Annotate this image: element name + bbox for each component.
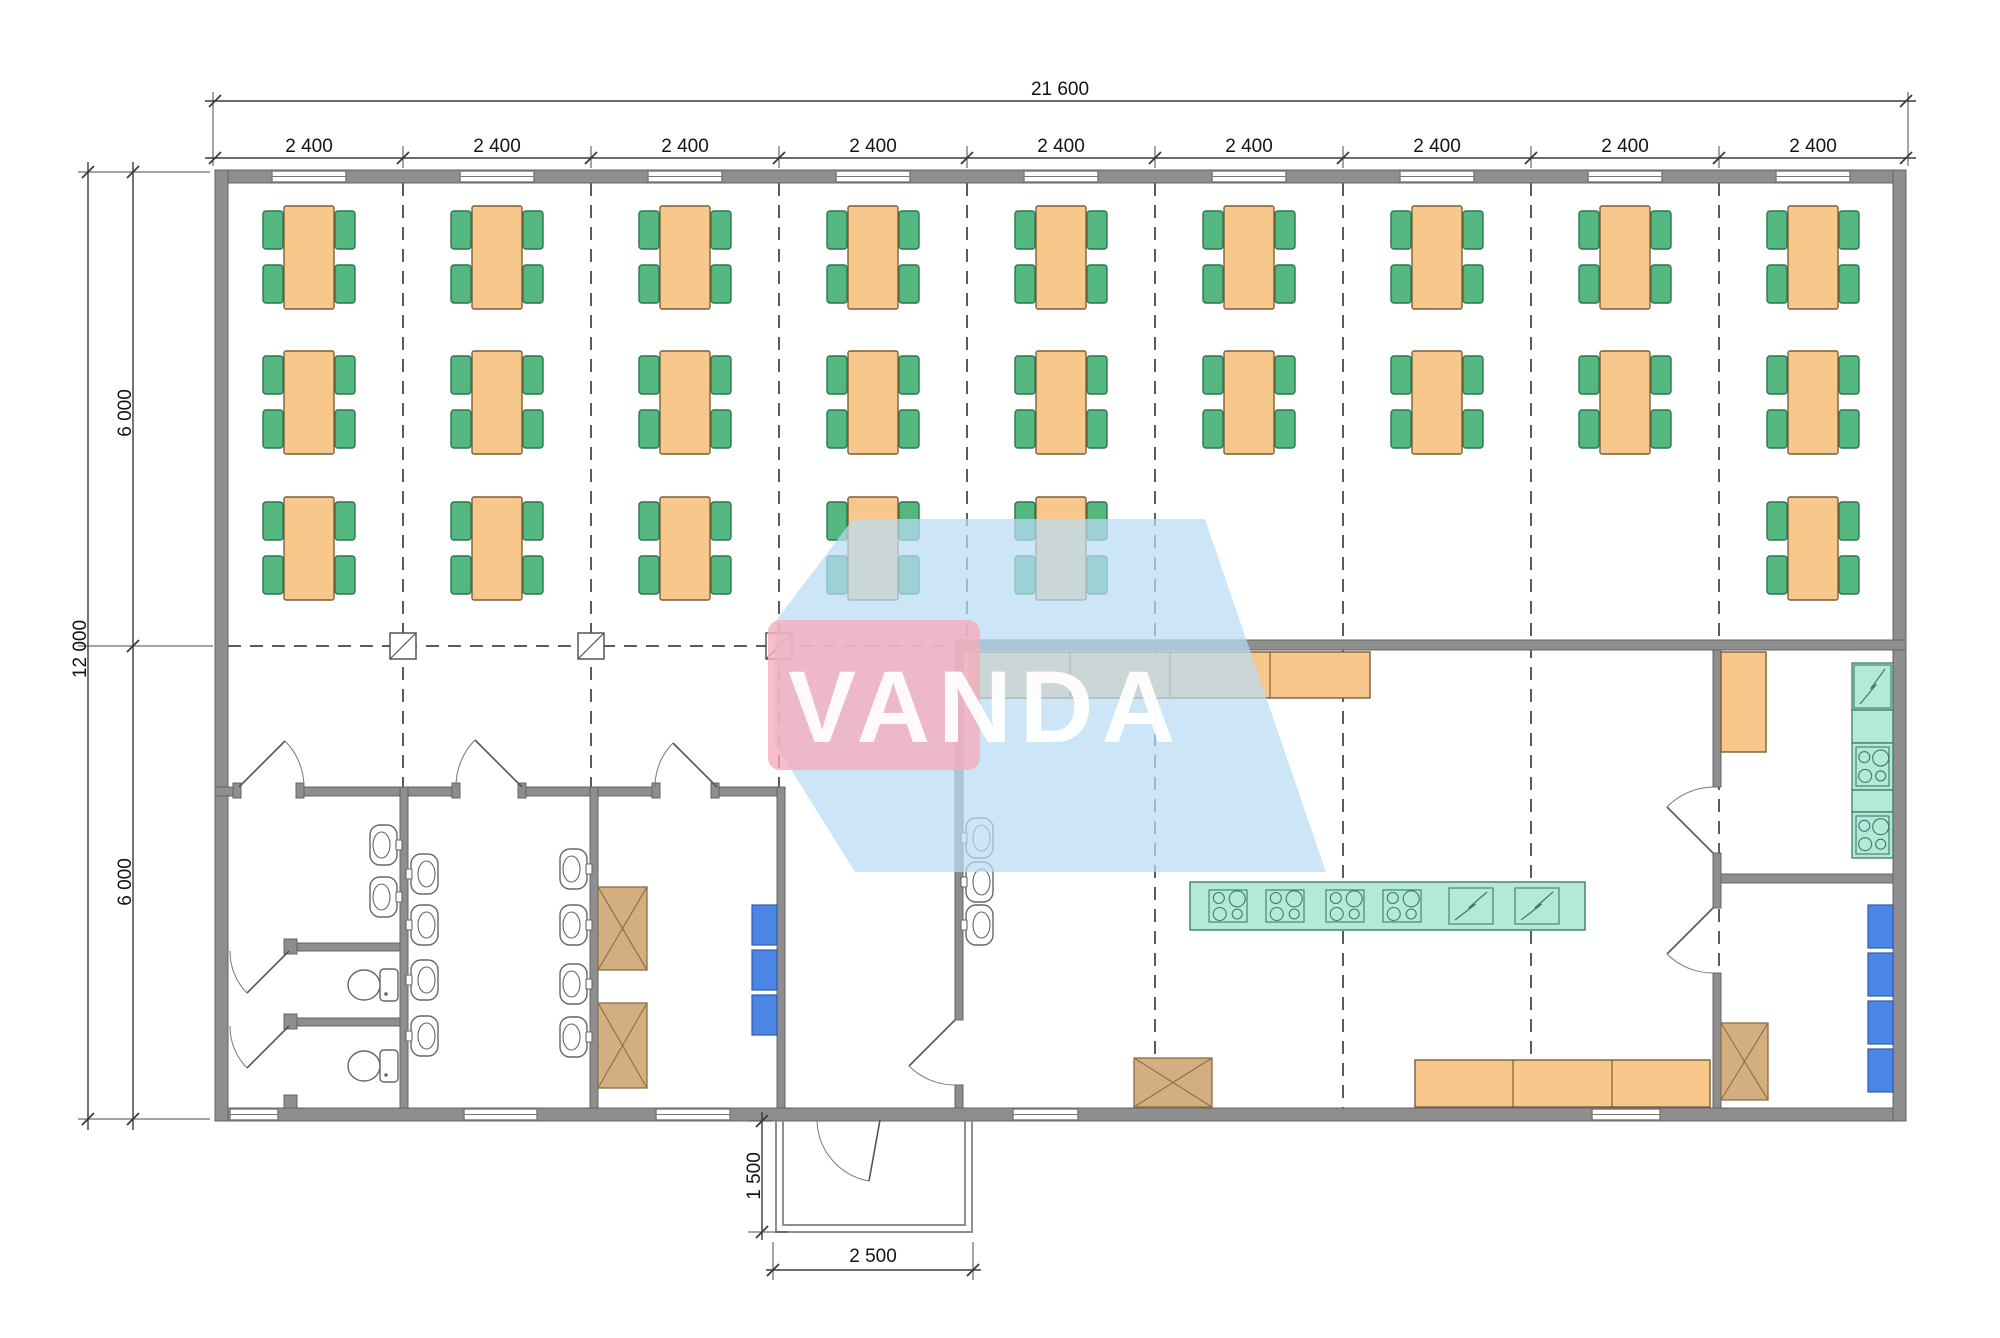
dining-chair — [711, 410, 731, 448]
sink-faucet — [586, 979, 592, 989]
dim-bay-width: 2 400 — [1037, 136, 1085, 157]
dim-bay-width: 2 400 — [1789, 136, 1837, 157]
watermark-layer: VANDA — [768, 519, 1326, 872]
dining-chair — [335, 410, 355, 448]
wall-kitchen-east — [1713, 973, 1721, 1108]
wall-kitchen-east — [1713, 650, 1721, 787]
dining-chair — [711, 556, 731, 594]
entrance-porch — [776, 1121, 972, 1232]
kitchen-island — [1190, 882, 1585, 930]
door-stall-2-leaf — [247, 1026, 289, 1068]
dining-table — [1412, 206, 1462, 309]
dining-chair — [1275, 211, 1295, 249]
dining-chair — [263, 356, 283, 394]
dining-chair — [263, 211, 283, 249]
dining-chair — [1275, 356, 1295, 394]
dining-chair — [1391, 265, 1411, 303]
dining-table — [660, 497, 710, 600]
dining-chair — [711, 265, 731, 303]
dining-table — [1788, 351, 1838, 454]
kitchen-worktable — [1415, 1060, 1710, 1107]
dining-chair — [1767, 556, 1787, 594]
locker — [1868, 1049, 1893, 1092]
dining-chair — [523, 410, 543, 448]
dining-chair — [1275, 410, 1295, 448]
dining-chair — [899, 265, 919, 303]
dining-table — [1036, 206, 1086, 309]
dining-chair — [1579, 265, 1599, 303]
sink — [411, 854, 438, 894]
door-hall-kitchen-leaf — [909, 1020, 955, 1066]
dim-bay-width: 2 400 — [1413, 136, 1461, 157]
dining-chair — [523, 556, 543, 594]
wall-toilet-stall — [287, 943, 400, 951]
dining-chair — [263, 265, 283, 303]
door-jamb — [296, 783, 304, 798]
dining-chair — [1767, 502, 1787, 540]
door-main-entrance-swing-arc — [817, 1120, 869, 1181]
dining-chair — [1839, 410, 1859, 448]
wall-rightrooms-divider — [1721, 874, 1893, 883]
wall-kitchen-east — [1713, 853, 1721, 908]
dining-chair — [711, 211, 731, 249]
dining-chair — [263, 502, 283, 540]
dining-chair — [639, 410, 659, 448]
dining-chair — [1015, 265, 1035, 303]
sink-faucet — [396, 892, 402, 902]
wall-lockerroom-hall — [777, 787, 785, 1108]
dining-chair — [1463, 211, 1483, 249]
dim-bay-width: 2 400 — [473, 136, 521, 157]
kitchen-wall-unit — [1852, 710, 1893, 743]
dining-chair — [1839, 265, 1859, 303]
locker — [752, 905, 777, 945]
sink — [370, 877, 397, 917]
dining-chair — [335, 265, 355, 303]
sink — [560, 964, 587, 1004]
stall-door-stub — [284, 1014, 297, 1029]
sink-faucet — [586, 864, 592, 874]
toilet-flush-dot — [384, 1073, 388, 1077]
locker — [1868, 1001, 1893, 1044]
dining-chair — [639, 356, 659, 394]
dining-table — [1600, 351, 1650, 454]
dining-chair — [827, 356, 847, 394]
dining-table — [1412, 351, 1462, 454]
sink — [411, 905, 438, 945]
sink-faucet — [406, 869, 412, 879]
dining-table — [660, 351, 710, 454]
locker — [1868, 953, 1893, 996]
toilet-flush-dot — [384, 992, 388, 996]
dining-table — [1224, 206, 1274, 309]
floor-plan-page: 2 4002 4002 4002 4002 4002 4002 4002 400… — [0, 0, 2000, 1338]
dining-chair — [1087, 211, 1107, 249]
dining-chair — [1463, 410, 1483, 448]
door-storage-bottom-swing-arc — [1667, 954, 1713, 973]
locker — [752, 950, 777, 990]
wall-washrooms-north — [522, 787, 656, 796]
locker — [752, 995, 777, 1035]
door-stall-1-leaf — [247, 951, 289, 993]
dining-chair — [1275, 265, 1295, 303]
dim-half-height-top: 6 000 — [115, 389, 136, 437]
dining-chair — [523, 211, 543, 249]
door-toilet-room-leaf — [239, 741, 285, 787]
wall-toilet-washroom — [400, 787, 408, 1108]
sink — [411, 960, 438, 1000]
dining-chair — [1839, 556, 1859, 594]
door-locker-room-swing-arc — [655, 743, 673, 787]
dining-chair — [1087, 265, 1107, 303]
dining-chair — [639, 211, 659, 249]
stall-door-stub — [284, 939, 297, 954]
dim-bay-width: 2 400 — [661, 136, 709, 157]
dining-chair — [1203, 265, 1223, 303]
dim-bay-width: 2 400 — [1601, 136, 1649, 157]
toilet-tank — [380, 969, 398, 1001]
dim-bay-width: 2 400 — [1225, 136, 1273, 157]
dining-chair — [1767, 356, 1787, 394]
dining-chair — [1767, 410, 1787, 448]
dining-table — [1788, 497, 1838, 600]
door-toilet-room-swing-arc — [285, 741, 304, 787]
dining-chair — [523, 502, 543, 540]
dining-chair — [1203, 211, 1223, 249]
dim-porch-depth: 1 500 — [744, 1152, 765, 1200]
dining-chair — [639, 502, 659, 540]
dining-chair — [335, 502, 355, 540]
sink-faucet — [396, 840, 402, 850]
door-main-entrance-leaf — [869, 1120, 880, 1181]
dining-table — [848, 351, 898, 454]
wall-exterior-left — [215, 170, 228, 1121]
dining-table — [1036, 351, 1086, 454]
dining-table — [472, 351, 522, 454]
dim-total-width: 21 600 — [1031, 79, 1089, 100]
sink-faucet — [406, 920, 412, 930]
dining-chair — [1839, 211, 1859, 249]
dining-chair — [711, 356, 731, 394]
dining-chair — [451, 211, 471, 249]
dining-chair — [523, 265, 543, 303]
dining-table — [848, 206, 898, 309]
dining-table — [1788, 206, 1838, 309]
dining-chair — [1203, 410, 1223, 448]
dim-half-height-bottom: 6 000 — [115, 858, 136, 906]
dining-table — [284, 206, 334, 309]
sink — [560, 1017, 587, 1057]
dining-table — [472, 497, 522, 600]
dim-bay-width: 2 400 — [285, 136, 333, 157]
dining-chair — [1463, 265, 1483, 303]
dining-chair — [335, 556, 355, 594]
dim-bay-width: 2 400 — [849, 136, 897, 157]
storage-counter — [1721, 652, 1766, 752]
dining-chair — [1579, 410, 1599, 448]
toilet-bowl — [348, 1051, 380, 1081]
dining-chair — [1087, 356, 1107, 394]
toilet-tank — [380, 1050, 398, 1082]
dining-chair — [1203, 356, 1223, 394]
dining-chair — [1391, 410, 1411, 448]
dining-chair — [1651, 211, 1671, 249]
stall-door-stub — [284, 1095, 297, 1108]
dining-chair — [451, 502, 471, 540]
dining-table — [660, 206, 710, 309]
dining-chair — [1839, 502, 1859, 540]
dining-table — [284, 351, 334, 454]
dining-chair — [1579, 356, 1599, 394]
kitchen-wall-unit — [1852, 790, 1893, 812]
dining-chair — [1391, 211, 1411, 249]
dining-chair — [827, 211, 847, 249]
dining-chair — [1015, 211, 1035, 249]
dining-chair — [1087, 410, 1107, 448]
dining-chair — [1651, 356, 1671, 394]
sink — [411, 1016, 438, 1056]
sink — [370, 825, 397, 865]
door-storage-top-swing-arc — [1667, 787, 1713, 807]
sink-faucet — [586, 1032, 592, 1042]
sink — [560, 905, 587, 945]
dining-chair — [711, 502, 731, 540]
dining-chair — [639, 556, 659, 594]
dining-table — [1224, 351, 1274, 454]
wall-toilet-stall — [287, 1018, 400, 1026]
dining-chair — [1391, 356, 1411, 394]
sink-faucet — [406, 1031, 412, 1041]
dining-chair — [1579, 211, 1599, 249]
sink-faucet — [406, 975, 412, 985]
door-stall-2-swing-arc — [230, 1026, 247, 1068]
door-washroom-swing-arc — [456, 740, 475, 787]
door-storage-top-leaf — [1667, 807, 1713, 853]
dining-chair — [827, 265, 847, 303]
dining-chair — [451, 410, 471, 448]
door-locker-room-leaf — [673, 743, 717, 787]
dining-chair — [335, 211, 355, 249]
dim-total-height: 12 000 — [70, 620, 91, 678]
kitchen-wall-unit — [1852, 743, 1893, 790]
dining-chair — [1767, 211, 1787, 249]
door-washroom-leaf — [475, 740, 522, 787]
door-jamb — [652, 783, 660, 798]
dining-chair — [899, 356, 919, 394]
door-stall-1-swing-arc — [230, 951, 247, 993]
dining-chair — [639, 265, 659, 303]
dining-chair — [1651, 410, 1671, 448]
dining-chair — [1839, 356, 1859, 394]
wall-hall-kitchen-stub — [955, 1085, 963, 1108]
sink-faucet — [961, 877, 967, 887]
dining-chair — [451, 556, 471, 594]
dining-chair — [1767, 265, 1787, 303]
door-storage-bottom-leaf — [1667, 908, 1713, 954]
watermark-text: VANDA — [788, 650, 1183, 764]
wall-washroom-lockerroom — [590, 787, 598, 1108]
dining-chair — [263, 410, 283, 448]
wall-washrooms-north — [300, 787, 456, 796]
door-hall-kitchen-swing-arc — [909, 1066, 955, 1085]
dining-chair — [335, 356, 355, 394]
dim-porch-width: 2 500 — [849, 1246, 897, 1267]
entrance-porch — [783, 1121, 965, 1225]
sink-faucet — [961, 920, 967, 930]
dining-chair — [899, 211, 919, 249]
kitchen-wall-unit — [1852, 812, 1893, 858]
sink — [560, 849, 587, 889]
dining-chair — [451, 356, 471, 394]
dining-table — [1600, 206, 1650, 309]
dining-chair — [899, 410, 919, 448]
dining-chair — [1651, 265, 1671, 303]
sink — [966, 905, 993, 945]
dining-chair — [451, 265, 471, 303]
dining-table — [284, 497, 334, 600]
dining-chair — [263, 556, 283, 594]
dining-chair — [1015, 410, 1035, 448]
sink-faucet — [586, 920, 592, 930]
floor-plan-drawing: 2 4002 4002 4002 4002 4002 4002 4002 400… — [0, 0, 2000, 1338]
dining-table — [472, 206, 522, 309]
locker — [1868, 905, 1893, 948]
dining-chair — [1463, 356, 1483, 394]
dining-chair — [827, 410, 847, 448]
toilet-bowl — [348, 970, 380, 1000]
wall-washrooms-north — [715, 787, 785, 796]
dining-chair — [1015, 356, 1035, 394]
dining-chair — [523, 356, 543, 394]
